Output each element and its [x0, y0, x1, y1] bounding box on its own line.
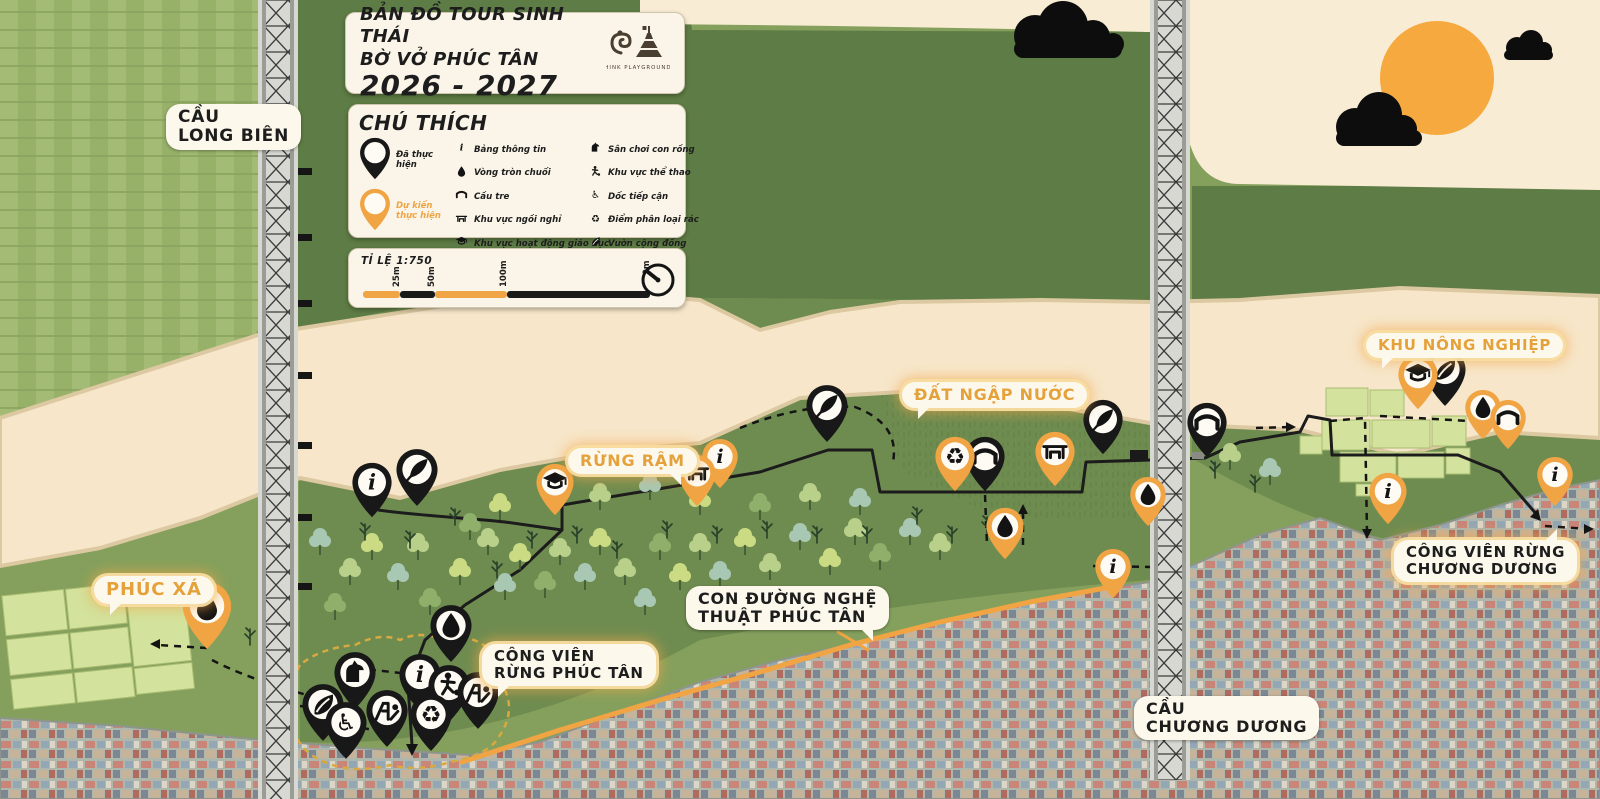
svg-text:i: i — [460, 143, 464, 154]
legend-item-droplet: Vòng tròn chuối — [454, 164, 582, 183]
legend-item-label: Vườn cộng đồng — [608, 239, 686, 249]
scale-tick-50m: 50m — [427, 266, 437, 287]
legend-item-recycling: ♻Điểm phân loại rác — [588, 211, 699, 230]
legend-item-label: Vòng tròn chuối — [474, 168, 551, 178]
legend-status-label: Dự kiến thực hiện — [396, 202, 448, 222]
legend-card: CHÚ THÍCH Đã thực hiệnDự kiến thực hiện … — [348, 104, 686, 238]
map-title-line1: BẢN ĐỒ TOUR SINH THÁI — [360, 4, 596, 49]
droplet-icon — [454, 164, 469, 183]
info-icon: i — [454, 140, 469, 159]
legend-heading: CHÚ THÍCH — [359, 111, 675, 135]
map-title-line2: BỜ VỞ PHÚC TÂN — [360, 49, 596, 72]
map-title-years: 2026 - 2027 — [360, 71, 596, 102]
legend-status-label: Đã thực hiện — [396, 151, 448, 171]
svg-text:♿: ♿ — [591, 190, 600, 201]
think-playgrounds-logo: THINK PLAYGROUNDS — [606, 21, 670, 85]
svg-text:♻: ♻ — [591, 213, 600, 224]
legend-item-label: Điểm phân loại rác — [608, 215, 699, 225]
scale-segment — [435, 291, 507, 298]
scale-segment — [400, 291, 435, 298]
legend-item-label: Bảng thông tin — [474, 145, 546, 155]
pin-done-icon — [359, 137, 391, 184]
scale-bar: 25m50m100m200m — [363, 291, 655, 298]
legend-item-bench: Khu vực ngồi nghỉ — [454, 211, 582, 230]
scale-label: TỈ LỆ 1:750 — [361, 255, 673, 267]
title-card: BẢN ĐỒ TOUR SINH THÁI BỜ VỞ PHÚC TÂN 202… — [345, 12, 685, 94]
scale-segment — [507, 291, 650, 298]
legend-item-accessible-ramp: ♿Dốc tiếp cận — [588, 187, 699, 206]
map-terrain — [0, 0, 1600, 799]
farm-plots-phuc-xa — [2, 577, 195, 709]
legend-status-pin-planned: Dự kiến thực hiện — [359, 188, 448, 235]
bamboo-bridge-icon — [454, 187, 469, 206]
pin-planned-icon — [359, 188, 391, 235]
scale-tick-100m: 100m — [499, 260, 509, 287]
legend-item-info: iBảng thông tin — [454, 140, 582, 159]
scale-tick-25m: 25m — [392, 266, 402, 287]
legend-item-label: Cầu tre — [474, 192, 509, 202]
legend-item-label: Khu vực thể thao — [608, 168, 691, 178]
sports-icon — [588, 164, 603, 183]
dragon-playground-icon — [588, 140, 603, 159]
legend-item-label: Khu vực ngồi nghỉ — [474, 215, 561, 225]
legend-item-sports: Khu vực thể thao — [588, 164, 699, 183]
logo-caption: THINK PLAYGROUNDS — [606, 65, 670, 71]
compass-icon — [639, 261, 677, 303]
legend-status-pin-done: Đã thực hiện — [359, 137, 448, 184]
eco-tour-map-poster: i♻iiiii♻♿ CẦULONG BIÊNPHÚC XÁRỪNG RẬMĐẤT… — [0, 0, 1600, 799]
accessible-ramp-icon: ♿ — [588, 187, 603, 206]
recycling-icon: ♻ — [588, 211, 603, 230]
scale-segment — [363, 291, 400, 298]
legend-item-dragon-playground: Sân chơi con rồng — [588, 140, 699, 159]
scale-card: TỈ LỆ 1:750 25m50m100m200m — [348, 248, 686, 308]
legend-item-label: Dốc tiếp cận — [608, 192, 668, 202]
legend-item-label: Sân chơi con rồng — [608, 145, 695, 155]
legend-item-bamboo-bridge: Cầu tre — [454, 187, 582, 206]
bench-icon — [454, 211, 469, 230]
